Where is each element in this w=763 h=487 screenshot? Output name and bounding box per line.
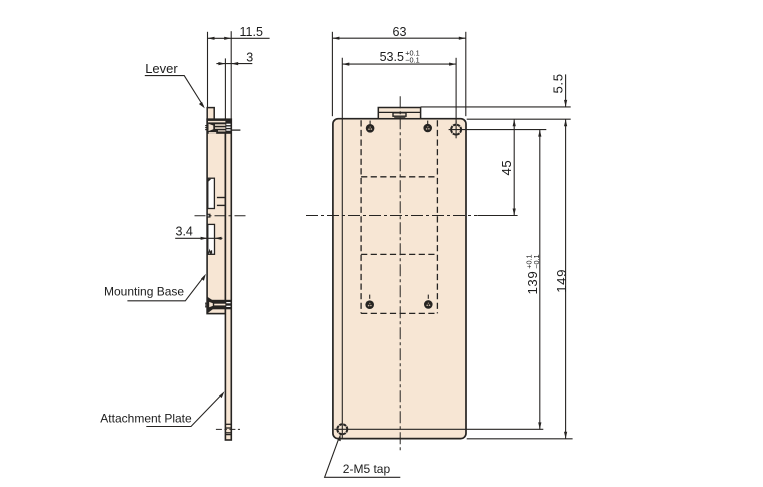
- svg-text:−0.1: −0.1: [405, 56, 419, 65]
- svg-text:63: 63: [393, 25, 407, 39]
- svg-text:3.4: 3.4: [176, 224, 193, 238]
- svg-text:−0.1: −0.1: [532, 254, 541, 268]
- svg-text:149: 149: [554, 269, 569, 293]
- svg-text:Lever: Lever: [145, 61, 178, 76]
- svg-text:Attachment Plate: Attachment Plate: [100, 412, 192, 426]
- svg-text:2-M5 tap: 2-M5 tap: [343, 462, 391, 476]
- svg-text:139: 139: [525, 271, 540, 295]
- svg-text:3: 3: [246, 50, 253, 64]
- svg-text:53.5: 53.5: [380, 50, 404, 64]
- svg-text:Mounting Base: Mounting Base: [104, 285, 184, 299]
- svg-text:45: 45: [499, 160, 514, 176]
- svg-text:5.5: 5.5: [551, 73, 566, 93]
- svg-text:11.5: 11.5: [240, 25, 263, 39]
